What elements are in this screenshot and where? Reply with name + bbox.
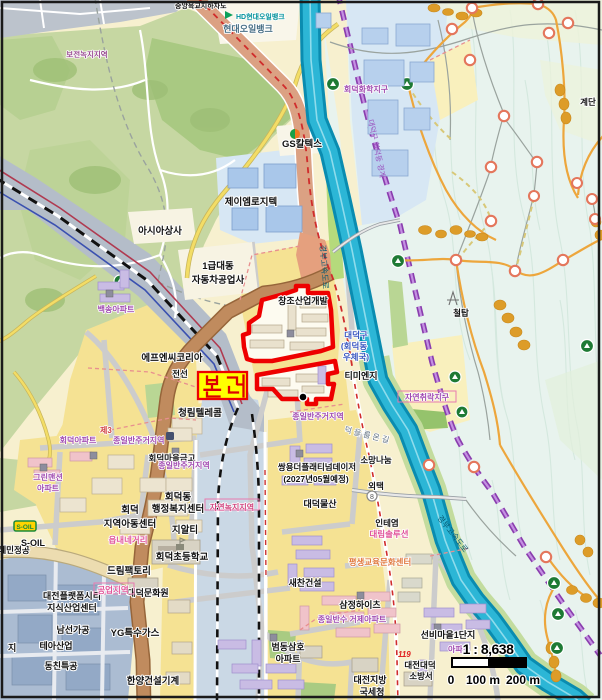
svg-text:철탑: 철탑 <box>453 308 469 318</box>
svg-text:(2027년05월예정): (2027년05월예정) <box>283 474 348 484</box>
svg-text:현대오일뱅크: 현대오일뱅크 <box>223 23 273 34</box>
svg-text:대전지방: 대전지방 <box>353 674 387 685</box>
svg-text:S-OIL: S-OIL <box>21 538 46 548</box>
svg-text:종일반주거지역: 종일반주거지역 <box>113 435 165 445</box>
svg-text:청림텔레콤: 청림텔레콤 <box>178 407 222 419</box>
svg-text:지식산업센터: 지식산업센터 <box>47 602 97 613</box>
svg-text:동친특공: 동친특공 <box>44 660 77 671</box>
svg-text:119: 119 <box>398 650 411 659</box>
svg-text:읍내네거리: 읍내네거리 <box>108 535 147 545</box>
svg-text:드림팩토리: 드림팩토리 <box>107 565 151 577</box>
svg-text:에프엔씨코리아: 에프엔씨코리아 <box>141 352 202 364</box>
svg-text:제이엠로지텍: 제이엠로지텍 <box>225 196 277 208</box>
svg-text:대전플랫폼시티: 대전플랫폼시티 <box>43 590 101 601</box>
svg-text:우체국): 우체국) <box>343 352 369 362</box>
svg-text:대림솔루션: 대림솔루션 <box>369 529 408 539</box>
svg-text:창조산업개발: 창조산업개발 <box>278 295 328 306</box>
svg-text:회덕아파트: 회덕아파트 <box>60 435 97 445</box>
svg-text:남선가공: 남선가공 <box>56 624 89 635</box>
svg-text:GS칼텍스: GS칼텍스 <box>282 138 322 150</box>
svg-text:아시아상사: 아시아상사 <box>138 225 182 237</box>
svg-text:공업지역: 공업지역 <box>97 585 128 595</box>
svg-text:아파트: 아파트 <box>276 653 302 664</box>
svg-text:보전녹지지역: 보전녹지지역 <box>66 49 107 59</box>
svg-text:소망나눔: 소망나눔 <box>360 455 391 465</box>
svg-text:한양건설기계: 한양건설기계 <box>127 675 179 687</box>
svg-text:100 m: 100 m <box>466 673 500 687</box>
svg-text:범동삼호: 범동삼호 <box>271 641 305 652</box>
svg-text:종일반주거지역: 종일반주거지역 <box>158 460 210 470</box>
svg-text:티미엔지: 티미엔지 <box>344 370 377 381</box>
svg-text:인테염: 인테염 <box>375 518 398 528</box>
svg-text:200 m: 200 m <box>506 673 540 687</box>
svg-text:소방서: 소방서 <box>409 671 432 681</box>
svg-text:회덕: 회덕 <box>121 504 138 516</box>
svg-text:행정복지센터: 행정복지센터 <box>152 503 204 515</box>
svg-text:8: 8 <box>370 494 374 501</box>
svg-text:그린맨션: 그린맨션 <box>33 472 62 482</box>
svg-text:0: 0 <box>448 673 455 687</box>
svg-text:HD현대오일뱅크: HD현대오일뱅크 <box>236 12 285 21</box>
svg-text:회덕초등학교: 회덕초등학교 <box>156 551 209 563</box>
svg-text:계단: 계단 <box>580 97 596 107</box>
svg-text:지역아동센터: 지역아동센터 <box>104 518 156 530</box>
svg-text:(회덕동: (회덕동 <box>341 341 367 351</box>
svg-text:회덕동: 회덕동 <box>165 491 191 503</box>
svg-text:국세청: 국세청 <box>360 686 385 697</box>
svg-text:자동차공업사: 자동차공업사 <box>192 274 245 286</box>
svg-text:아파트: 아파트 <box>37 483 60 493</box>
svg-text:지알티: 지알티 <box>172 524 198 536</box>
svg-text:S-OIL: S-OIL <box>16 524 33 531</box>
svg-text:종일반주거지역: 종일반주거지역 <box>292 411 344 421</box>
svg-text:지: 지 <box>8 642 16 653</box>
svg-text:전선: 전선 <box>172 369 188 379</box>
svg-text:제3: 제3 <box>100 425 112 435</box>
svg-text:외택: 외택 <box>368 481 384 491</box>
svg-text:대전대덕: 대전대덕 <box>404 660 435 670</box>
svg-text:선비마을1단지: 선비마을1단지 <box>421 629 476 640</box>
svg-text:YG특수가스: YG특수가스 <box>111 627 160 639</box>
svg-text:1 : 8,638: 1 : 8,638 <box>463 641 514 657</box>
svg-text:1급대동: 1급대동 <box>202 260 234 272</box>
svg-text:자연취락지구: 자연취락지구 <box>405 392 450 402</box>
svg-text:평생교육문화센터: 평생교육문화센터 <box>349 557 412 567</box>
svg-text:대덕구: 대덕구 <box>344 330 368 340</box>
svg-text:삼정하이츠: 삼정하이츠 <box>339 599 381 610</box>
svg-text:종일반수 거제아파트: 종일반수 거제아파트 <box>318 614 387 624</box>
svg-text:백송아파트: 백송아파트 <box>98 304 135 314</box>
svg-text:테아산업: 테아산업 <box>39 640 72 651</box>
svg-text:대덕물산: 대덕물산 <box>303 498 337 509</box>
svg-text:쌍용더플래티넘데이저: 쌍용더플래티넘데이저 <box>278 462 356 472</box>
svg-text:새찬건설: 새찬건설 <box>288 577 321 588</box>
svg-text:회덕화학지구: 회덕화학지구 <box>344 84 389 94</box>
